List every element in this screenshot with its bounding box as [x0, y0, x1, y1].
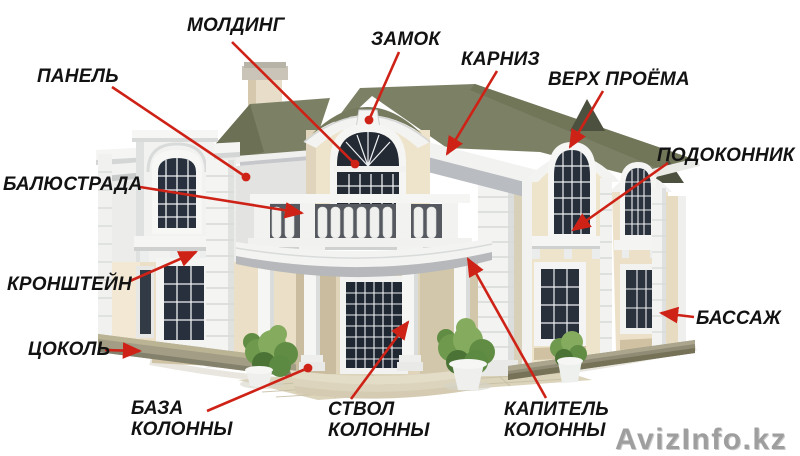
diagram-canvas: МОЛДИНГЗАМОККАРНИЗВЕРХ ПРОЁМАПОДОКОННИКП… — [0, 0, 800, 456]
house-illustration — [0, 0, 800, 456]
watermark: AvizInfo.kz — [615, 423, 787, 456]
bracket-corbel — [140, 251, 149, 262]
